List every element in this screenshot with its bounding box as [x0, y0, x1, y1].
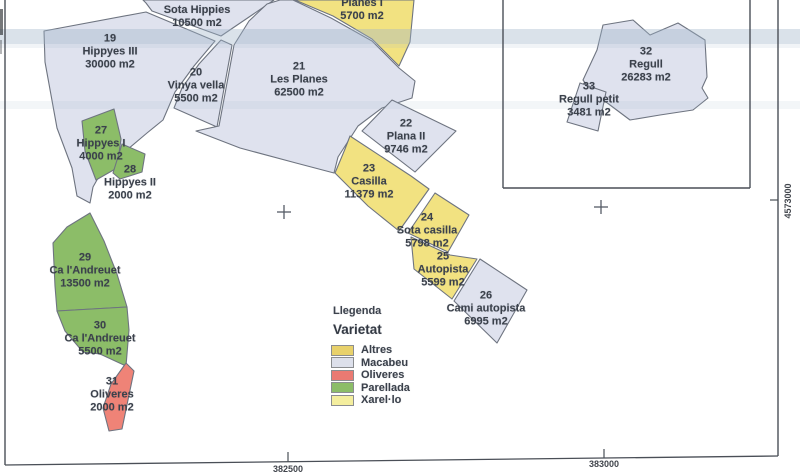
- legend-color-swatch: [331, 357, 354, 368]
- legend-item-label: Xarel·lo: [361, 394, 401, 406]
- parcel-polygon-31: [103, 363, 134, 431]
- legend-color-swatch: [331, 382, 354, 393]
- scan-artifact-band: [0, 29, 800, 44]
- map-frame-bottom: [5, 456, 778, 465]
- legend-item-xarel-lo: Xarel·lo: [331, 394, 471, 407]
- legend-item-altres: Altres: [331, 344, 471, 357]
- legend-items: AltresMacabeuOliveresParelladaXarel·lo: [331, 344, 471, 407]
- legend-item-oliveres: Oliveres: [331, 369, 471, 382]
- legend-color-swatch: [331, 370, 354, 381]
- parcel-polygon-30: [57, 307, 129, 366]
- legend-item-parellada: Parellada: [331, 382, 471, 395]
- scan-artifact-band: [0, 44, 800, 48]
- legend-item-label: Oliveres: [361, 369, 404, 381]
- legend-color-swatch: [331, 345, 354, 356]
- legend-item-macabeu: Macabeu: [331, 357, 471, 370]
- scan-edge-smudge: [0, 9, 3, 35]
- legend-heading: Varietat: [333, 322, 471, 337]
- parcel-polygon-29: [53, 213, 127, 311]
- legend-item-label: Macabeu: [361, 357, 408, 369]
- legend-item-label: Parellada: [361, 382, 410, 394]
- legend-color-swatch: [331, 395, 354, 406]
- scan-artifact-band: [0, 101, 800, 109]
- scanned-parcel-map: Sota Hippies10500 m219Hippyes III30000 m…: [0, 0, 800, 474]
- legend-item-label: Altres: [361, 344, 392, 356]
- legend-title: Llegenda: [333, 305, 471, 317]
- scan-edge-smudge: [0, 40, 2, 54]
- map-legend: Llegenda Varietat AltresMacabeuOliveresP…: [331, 305, 471, 407]
